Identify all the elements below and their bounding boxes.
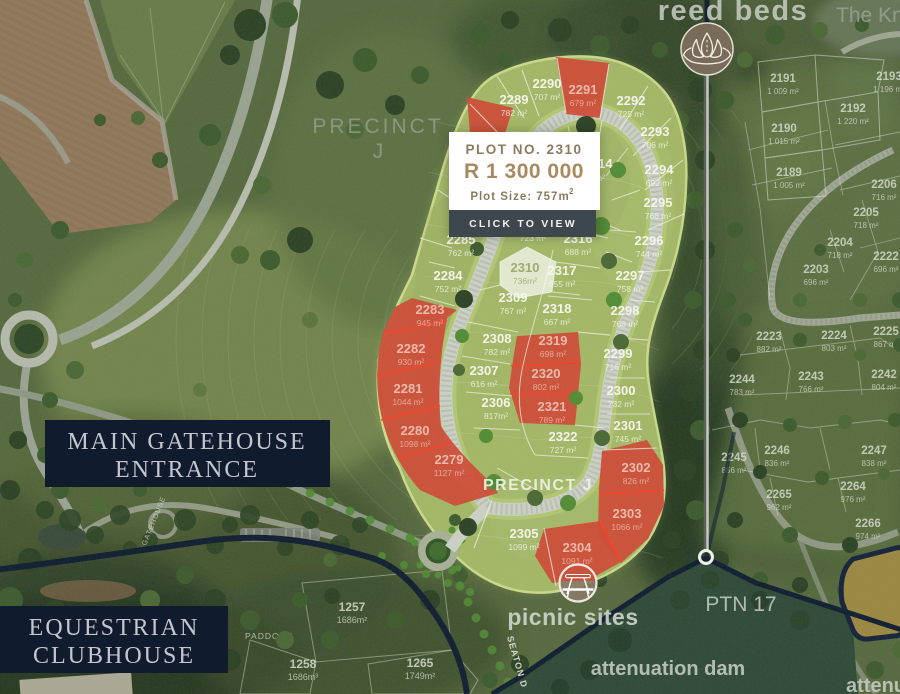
svg-text:2310: 2310 [511, 260, 540, 275]
svg-text:2307: 2307 [470, 363, 499, 378]
svg-text:667 m²: 667 m² [544, 317, 571, 327]
svg-text:768 m²: 768 m² [645, 211, 672, 221]
svg-text:817m²: 817m² [484, 411, 508, 421]
svg-text:picnic sites: picnic sites [507, 604, 638, 630]
svg-text:2295: 2295 [644, 195, 673, 210]
svg-text:attenuation dam: attenuation dam [591, 658, 745, 680]
svg-text:2292: 2292 [617, 93, 646, 108]
svg-text:1098 m²: 1098 m² [399, 439, 430, 449]
svg-text:2317: 2317 [548, 263, 577, 278]
svg-text:1099 m²: 1099 m² [508, 542, 539, 552]
svg-text:744 m²: 744 m² [636, 249, 663, 259]
svg-text:2321: 2321 [538, 399, 567, 414]
svg-text:attenu: attenu [846, 675, 900, 694]
svg-text:768 m²: 768 m² [612, 319, 639, 329]
svg-text:J: J [373, 140, 384, 163]
svg-text:2290: 2290 [533, 76, 562, 91]
svg-text:PTN 17: PTN 17 [705, 593, 776, 616]
svg-text:2320: 2320 [532, 366, 561, 381]
svg-text:2308: 2308 [483, 331, 512, 346]
svg-text:736m²: 736m² [513, 276, 537, 286]
svg-text:2299: 2299 [604, 346, 633, 361]
svg-text:758 m²: 758 m² [617, 284, 644, 294]
svg-text:826 m²: 826 m² [623, 476, 650, 486]
svg-text:745 m²: 745 m² [615, 434, 642, 444]
svg-text:2279: 2279 [435, 452, 464, 467]
svg-text:2296: 2296 [635, 233, 664, 248]
svg-text:Plot Size: 757m: Plot Size: 757m [470, 191, 569, 203]
svg-text:616 m²: 616 m² [471, 379, 498, 389]
svg-text:R 1 300 000: R 1 300 000 [464, 160, 584, 183]
svg-text:2289: 2289 [500, 92, 529, 107]
svg-text:1066 m²: 1066 m² [611, 522, 642, 532]
svg-text:2304: 2304 [563, 540, 593, 555]
svg-text:802 m²: 802 m² [533, 382, 560, 392]
svg-text:767 m²: 767 m² [500, 306, 527, 316]
svg-text:2305: 2305 [510, 526, 539, 541]
svg-text:1044 m²: 1044 m² [392, 397, 423, 407]
svg-text:ENTRANCE: ENTRANCE [115, 457, 259, 483]
svg-text:679 m²: 679 m² [570, 98, 597, 108]
svg-text:732 m²: 732 m² [608, 399, 635, 409]
svg-text:2293: 2293 [641, 124, 670, 139]
svg-text:PRECINCT J: PRECINCT J [483, 477, 593, 494]
svg-text:706 m²: 706 m² [642, 140, 669, 150]
svg-text:2302: 2302 [622, 460, 651, 475]
svg-text:2281: 2281 [394, 381, 423, 396]
svg-text:2319: 2319 [539, 333, 568, 348]
svg-text:762 m²: 762 m² [448, 248, 475, 258]
svg-text:2291: 2291 [569, 82, 598, 97]
svg-text:reed beds: reed beds [658, 0, 809, 27]
svg-text:2303: 2303 [613, 506, 642, 521]
svg-text:692 m²: 692 m² [646, 178, 673, 188]
svg-text:782 m²: 782 m² [484, 347, 511, 357]
svg-text:707 m²: 707 m² [534, 92, 561, 102]
svg-text:2283: 2283 [416, 302, 445, 317]
svg-text:CLICK TO VIEW: CLICK TO VIEW [469, 218, 577, 230]
svg-text:945 m²: 945 m² [417, 318, 444, 328]
svg-text:2280: 2280 [401, 423, 430, 438]
svg-text:930 m²: 930 m² [398, 357, 425, 367]
svg-text:2322: 2322 [549, 429, 578, 444]
svg-text:The Kno: The Kno [836, 4, 900, 27]
svg-text:2318: 2318 [543, 301, 572, 316]
svg-text:CLUBHOUSE: CLUBHOUSE [33, 643, 195, 669]
svg-text:2300: 2300 [607, 383, 636, 398]
svg-text:752 m²: 752 m² [435, 284, 462, 294]
svg-text:PRECINCT: PRECINCT [312, 115, 443, 138]
svg-text:2294: 2294 [645, 162, 675, 177]
svg-text:2282: 2282 [397, 341, 426, 356]
svg-text:725 m²: 725 m² [618, 109, 645, 119]
svg-text:782 m²: 782 m² [501, 108, 528, 118]
svg-text:688 m²: 688 m² [565, 247, 592, 257]
svg-text:698 m²: 698 m² [540, 349, 567, 359]
svg-text:716 m²: 716 m² [605, 362, 632, 372]
svg-text:2309: 2309 [499, 290, 528, 305]
svg-text:PLOT NO. 2310: PLOT NO. 2310 [465, 142, 582, 157]
svg-text:1127 m²: 1127 m² [434, 468, 465, 478]
svg-text:727 m²: 727 m² [550, 445, 577, 455]
svg-text:789 m²: 789 m² [539, 415, 566, 425]
svg-text:2301: 2301 [614, 418, 643, 433]
svg-text:2: 2 [569, 187, 574, 196]
svg-text:2298: 2298 [611, 303, 640, 318]
svg-text:655 m²: 655 m² [549, 279, 576, 289]
svg-text:2306: 2306 [482, 395, 511, 410]
svg-text:EQUESTRIAN: EQUESTRIAN [29, 615, 200, 641]
svg-text:2297: 2297 [616, 268, 645, 283]
svg-text:MAIN GATEHOUSE: MAIN GATEHOUSE [67, 429, 306, 455]
svg-text:2284: 2284 [434, 268, 464, 283]
